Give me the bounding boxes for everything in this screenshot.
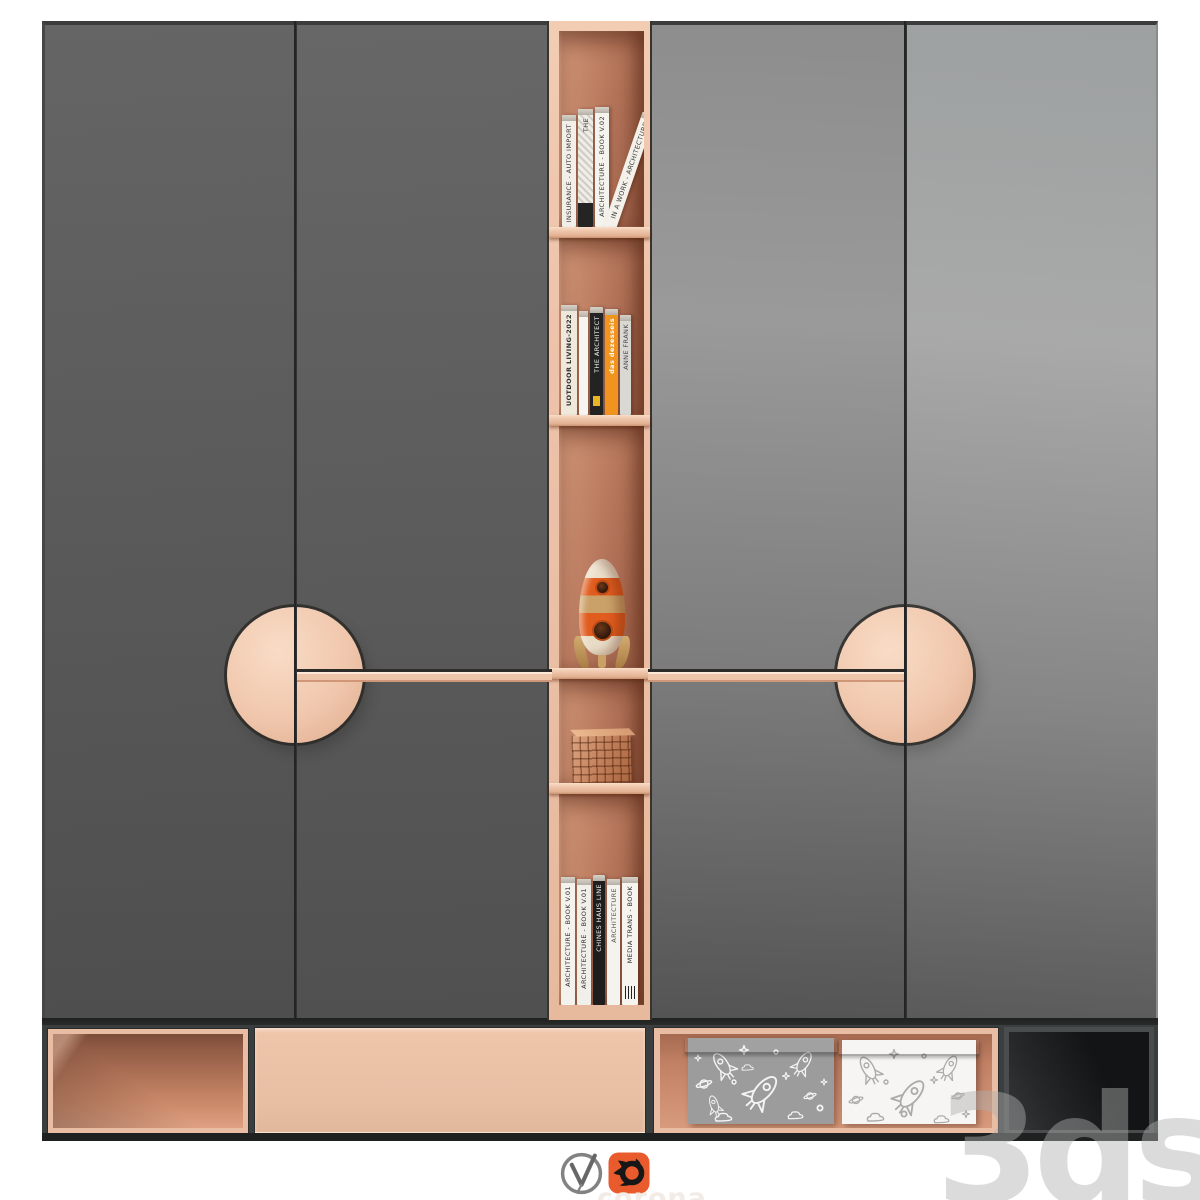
shelf-niche-books-bottom: ARCHITECTURE - BOOK V.01 ARCHITECTURE - … xyxy=(559,793,644,1005)
door-panel-1 xyxy=(42,21,295,1018)
handle-groove-right xyxy=(648,669,905,682)
book-spine: CHINES HAUS LINE xyxy=(593,875,605,1005)
shelf-niche-rocket xyxy=(559,425,644,668)
rocket-body xyxy=(579,559,625,655)
rocket-toy xyxy=(574,558,630,668)
rocket-window xyxy=(595,580,610,595)
book-spine: THE ARCHITECT xyxy=(590,307,603,415)
book-band xyxy=(578,203,593,227)
open-niche-left xyxy=(48,1029,248,1133)
corona-wordmark: corona xyxy=(597,1183,707,1200)
book-spine: THE xyxy=(578,109,593,227)
shelf-niche-books-mid: UOTDOOR LIVING-2022 THE ARCHITECT das de… xyxy=(559,237,644,415)
door-panel-2 xyxy=(297,21,547,1018)
book-spine: UOTDOOR LIVING-2022 xyxy=(561,305,577,415)
shelf-divider xyxy=(549,415,650,426)
rocket-window xyxy=(592,620,613,641)
render-canvas: INSURANCE - AUTO IMPORT THE ARCHITECTURE… xyxy=(0,0,1200,1200)
box-lid xyxy=(685,1038,837,1054)
book-spine: MEDIA TRANS - BOOK xyxy=(622,877,638,1005)
book-spine: ARCHITECTURE xyxy=(607,879,620,1005)
book-spine: ARCHITECTURE - BOOK V.01 xyxy=(561,877,575,1005)
handle-groove-left xyxy=(295,669,552,682)
book-spine-leaning: IN A WORK - ARCHITECTURE xyxy=(603,112,644,227)
door-seam-left xyxy=(294,21,297,1018)
book-spine: ARCHITECTURE - BOOK V.02 xyxy=(595,107,609,227)
niche-interior xyxy=(53,1034,243,1128)
book-spine: INSURANCE - AUTO IMPORT xyxy=(562,115,576,227)
shelf-niche-books-top: INSURANCE - AUTO IMPORT THE ARCHITECTURE… xyxy=(559,31,644,227)
watermark-3dsky: 3dsky xyxy=(936,1076,1200,1200)
shelf-column: INSURANCE - AUTO IMPORT THE ARCHITECTURE… xyxy=(547,21,652,1020)
drawer-front[interactable] xyxy=(255,1028,645,1135)
storage-box-gray xyxy=(688,1038,834,1124)
shelf-niche-cube xyxy=(559,678,644,783)
shelf-divider xyxy=(549,227,650,238)
book-spine xyxy=(579,311,588,415)
book-spine: ANNE FRANK xyxy=(620,315,631,415)
book-mark xyxy=(593,396,600,406)
shelf-divider xyxy=(549,783,650,794)
studded-cube xyxy=(571,734,631,783)
door-panel-3 xyxy=(652,21,905,1018)
box-lid xyxy=(839,1040,979,1056)
book-spine: das dezesseis xyxy=(605,309,618,415)
door-seam-right xyxy=(904,21,907,1018)
book-spine: ARCHITECTURE - BOOK V.01 xyxy=(577,879,591,1005)
book-barcode xyxy=(625,986,635,999)
shelf-divider xyxy=(549,668,650,679)
door-panel-4 xyxy=(907,21,1158,1018)
